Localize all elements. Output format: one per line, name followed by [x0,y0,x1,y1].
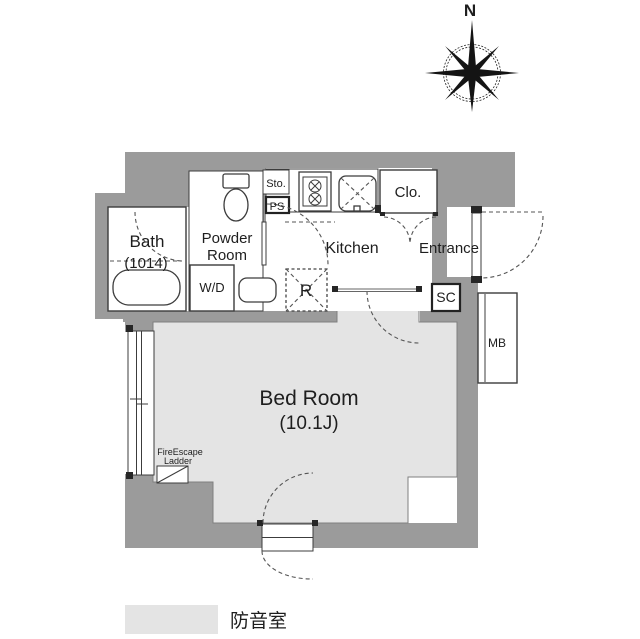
stove-icon [299,172,331,211]
floorplan-page: Bath (1014) Powder Room W/D Sto. PS Kitc… [0,0,640,639]
counter-end-jamb [375,205,381,213]
bottom-door-swing-out [262,551,313,579]
closet-jamb-right [433,212,438,216]
bedroom-size-label: (10.1J) [279,413,338,434]
compass-rose: N [425,1,519,112]
entrance-jamb-bottom [471,276,482,283]
window-jamb-bottom [126,472,133,479]
bedroom-label: Bed Room [259,387,358,410]
kitchen-sink-icon [339,176,376,211]
wall-clo-right [437,168,448,213]
bathtub-icon [113,270,180,305]
wall-right [457,322,478,548]
refrigerator-label: R [300,281,312,300]
meter-box-label: MB [488,336,506,350]
bottom-door-jamb-left [257,520,263,526]
bath-size-label: (1014) [124,255,167,272]
toilet-icon [223,174,249,221]
wd-label: W/D [199,280,224,295]
bedroom-window [126,325,154,479]
closet-jamb-left [380,212,385,216]
wall-bedroom-top [123,311,337,322]
powder-room-label-1: Powder [202,230,253,247]
bedroom-door-jamb-left [332,286,338,292]
fire-escape-hatch [157,466,188,483]
floorplan-svg: Bath (1014) Powder Room W/D Sto. PS Kitc… [0,0,640,639]
legend-swatch [125,605,218,634]
shoe-closet-label: SC [436,289,455,305]
bottom-door-jamb-right [312,520,318,526]
entrance-door-swing-arc [483,216,543,278]
toilet-bowl [224,189,248,221]
storage-label: Sto. [266,178,286,190]
window-jamb-top [126,325,133,332]
bedroom-door-jamb-right [416,286,422,292]
closet-label: Clo. [395,184,422,201]
pipe-space-label: PS [270,201,285,213]
compass-north-label: N [464,1,476,20]
entrance-jamb-top [471,206,482,213]
wall-lower-left [125,474,213,548]
bath-label: Bath [130,232,165,251]
wall-powder-divider [262,222,266,265]
entrance-door [471,206,543,283]
washbasin-icon [239,278,276,302]
legend: 防音室 [125,605,287,634]
wall-bottom [213,523,478,548]
entrance-label: Entrance [419,240,479,257]
powder-room-label-2: Room [207,247,247,264]
legend-label: 防音室 [230,610,287,632]
sink-faucet [354,206,360,211]
kitchen-label: Kitchen [325,240,378,257]
fire-escape-label-2: Ladder [164,456,192,466]
toilet-tank [223,174,249,188]
